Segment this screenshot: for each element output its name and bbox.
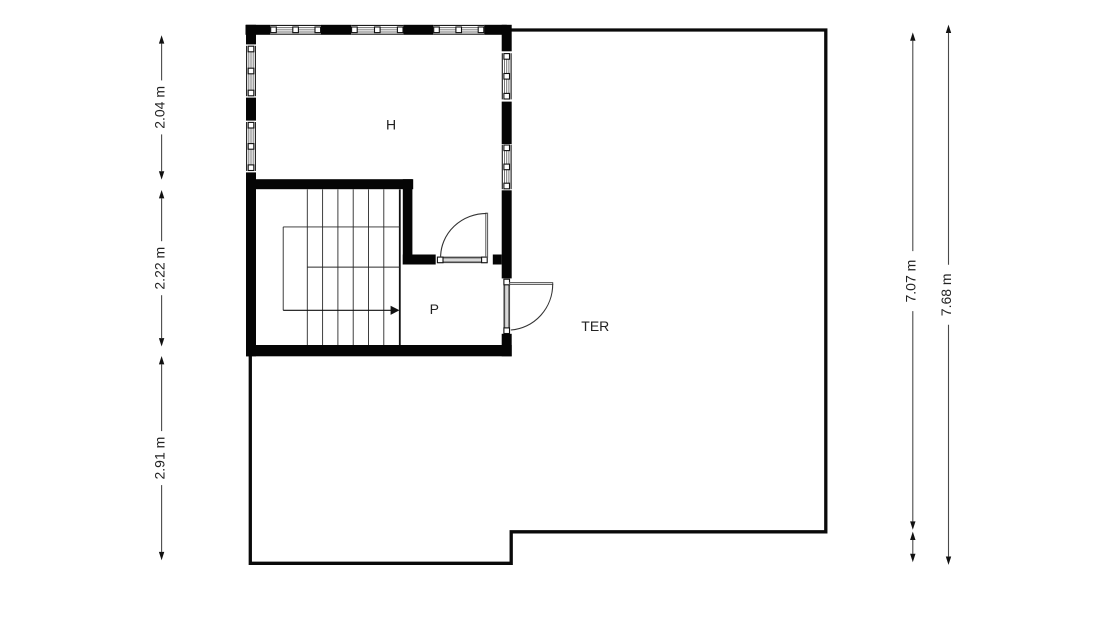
svg-text:TER: TER <box>581 318 609 334</box>
svg-text:7.68 m: 7.68 m <box>938 273 954 316</box>
svg-text:2.22 m: 2.22 m <box>151 247 167 290</box>
svg-text:2.91 m: 2.91 m <box>151 437 167 480</box>
svg-text:H: H <box>386 117 396 133</box>
svg-text:2.04 m: 2.04 m <box>151 86 167 129</box>
svg-text:P: P <box>430 301 439 317</box>
svg-text:7.07 m: 7.07 m <box>903 260 919 303</box>
